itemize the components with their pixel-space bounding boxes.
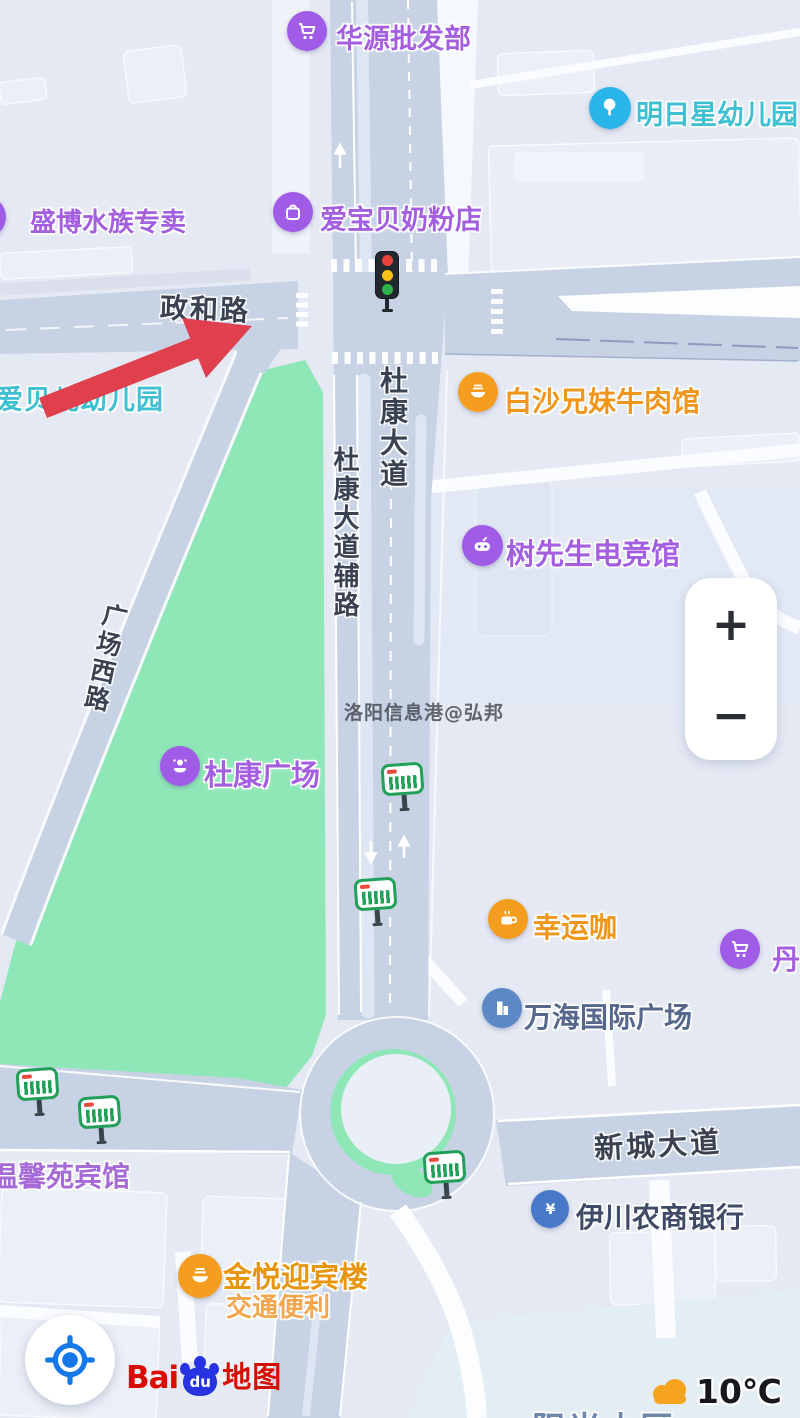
road-label-dukang-fulu: 杜康大道辅路 [326, 446, 363, 620]
zoom-out-button[interactable]: − [685, 669, 777, 760]
cart-icon [295, 19, 319, 43]
poi-pin-dukang-guangchang[interactable] [160, 746, 200, 786]
fountain-icon [168, 754, 192, 778]
poi-pin-mingri[interactable] [589, 87, 631, 129]
poi-sublabel-jinyue: 交通便利 [226, 1287, 330, 1324]
baidu-paw-icon: du [179, 1354, 221, 1396]
road-label-xincheng: 新城大道 [593, 1119, 723, 1168]
baidu-logo-du: du [183, 1367, 217, 1396]
poi-label-yichuan-bank[interactable]: 伊川农商银行 [576, 1196, 744, 1236]
billboard-icon [422, 1150, 467, 1201]
poi-pin-baisha[interactable] [458, 372, 498, 412]
bag-icon [281, 200, 305, 224]
poi-pin-xingyunka[interactable] [488, 899, 528, 939]
weather-widget: 10℃ [650, 1372, 782, 1411]
building-icon [490, 996, 514, 1020]
road-label-guangchang-xilu: 广场西路 [75, 599, 133, 716]
compass-target-icon [45, 1335, 95, 1385]
poi-label-wanhai[interactable]: 万海国际广场 [524, 996, 692, 1036]
poi-label-wenxinyuan[interactable]: 温馨苑宾馆 [0, 1155, 130, 1195]
poi-label-mingri[interactable]: 明日星幼儿园 [636, 93, 798, 132]
locate-me-button[interactable] [25, 1315, 115, 1405]
poi-pin-huayuan[interactable] [287, 11, 327, 51]
poi-label-aibaobei[interactable]: 爱宝贝奶粉店 [320, 198, 482, 237]
temperature-text: 10℃ [696, 1372, 782, 1411]
poi-label-shuxiansheng[interactable]: 树先生电竞馆 [506, 531, 680, 573]
cart-icon [728, 937, 752, 961]
baidu-logo-ditu: 地图 [222, 1354, 282, 1396]
poi-label-baisha[interactable]: 白沙兄妹牛肉馆 [504, 380, 700, 420]
noodle-bowl-icon [187, 1263, 213, 1289]
poi-pin-shuxiansheng[interactable] [462, 525, 503, 566]
tree-icon [597, 95, 622, 120]
poi-pin-shengbo[interactable] [0, 196, 6, 238]
poi-pin-aibaobei[interactable] [273, 192, 313, 232]
watermark-text: 洛阳信息港@弘邦 [344, 698, 504, 725]
svg-text:¥: ¥ [545, 1202, 555, 1218]
traffic-light-icon [375, 251, 399, 312]
poi-pin-dan[interactable] [720, 929, 760, 969]
billboard-icon [353, 877, 398, 928]
billboard-icon [15, 1067, 60, 1118]
road-label-zhenghe: 政和路 [159, 286, 250, 329]
poi-layer: 华源批发部 明日星幼儿园 盛博水族专卖 爱宝贝奶粉店 政和路 爱贝儿幼儿园 杜康… [0, 0, 800, 1418]
gamepad-icon [470, 533, 495, 558]
poi-label-huayuan[interactable]: 华源批发部 [336, 17, 471, 56]
cloud-icon [650, 1378, 690, 1406]
road-label-dukang: 杜康大道 [372, 366, 412, 490]
poi-label-aibeier[interactable]: 爱贝儿幼儿园 [0, 378, 164, 417]
poi-pin-jinyue[interactable] [178, 1254, 222, 1298]
noodle-bowl-icon [466, 380, 490, 404]
baidu-maps-logo: Bai du 地图 [126, 1354, 282, 1396]
poi-pin-yichuan-bank[interactable]: ¥ [531, 1190, 569, 1228]
baidu-logo-bai: Bai [126, 1360, 178, 1396]
poi-label-xingyunka[interactable]: 幸运咖 [533, 906, 617, 946]
map-screen: 华源批发部 明日星幼儿园 盛博水族专卖 爱宝贝奶粉店 政和路 爱贝儿幼儿园 杜康… [0, 0, 800, 1418]
zoom-in-button[interactable]: + [685, 578, 777, 669]
poi-label-dukang-guangchang[interactable]: 杜康广场 [204, 752, 320, 794]
yuan-icon: ¥ [539, 1198, 562, 1221]
poi-label-shengbo[interactable]: 盛博水族专卖 [30, 202, 186, 239]
billboard-icon [77, 1095, 122, 1146]
zoom-control-panel: + − [685, 578, 777, 760]
poi-pin-wanhai[interactable] [482, 988, 522, 1028]
coffee-cup-icon [496, 907, 520, 931]
poi-label-dan[interactable]: 丹 [772, 938, 800, 978]
billboard-icon [380, 762, 425, 813]
